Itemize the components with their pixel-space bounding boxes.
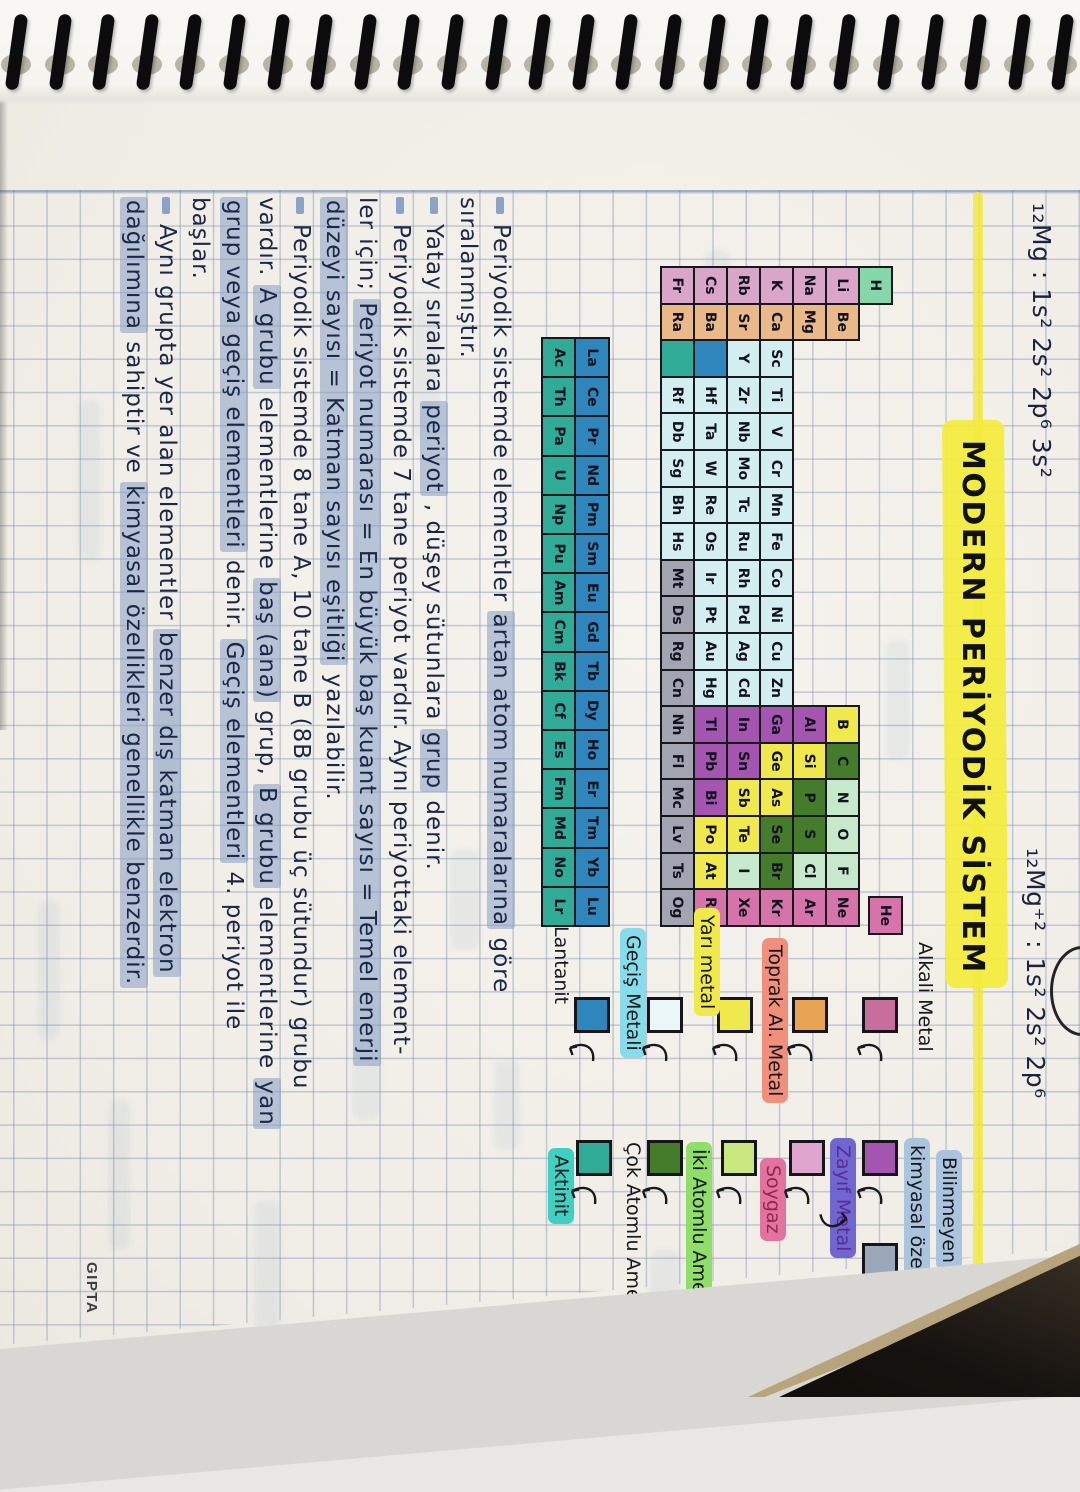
legend-color-box — [576, 1140, 612, 1176]
element-cell-Ru: Ru — [726, 522, 761, 561]
element-cell-Fm: Fm — [541, 768, 577, 809]
spiral-coil — [572, 13, 595, 90]
element-cell-He: He — [868, 896, 903, 935]
note-text: Periyodik sistemde 8 tane A, 10 tane B (… — [288, 224, 314, 1089]
spiral-coil — [5, 13, 28, 90]
note-line: Periyodik sistemde elementler artan atom… — [488, 197, 514, 993]
bullet-dash-icon — [497, 197, 505, 214]
element-cell-placeholder — [693, 339, 728, 378]
element-cell-Cm: Cm — [541, 611, 577, 652]
element-cell-Zn: Zn — [759, 669, 794, 708]
element-cell-Kr: Kr — [759, 888, 794, 927]
element-cell-Hf: Hf — [693, 376, 728, 415]
element-cell-Th: Th — [541, 376, 577, 417]
highlighted-text: periyot — [420, 401, 448, 495]
note-text: elementlerine — [254, 888, 280, 1078]
element-cell-Ba: Ba — [693, 303, 728, 342]
legend-color-box — [862, 997, 898, 1033]
element-cell-Bk: Bk — [541, 651, 577, 692]
element-cell-Be: Be — [825, 303, 860, 342]
note-line: dağılımına sahiptir ve kimyasal özellikl… — [121, 197, 147, 988]
element-cell-N: N — [825, 778, 860, 817]
spiral-coil — [833, 13, 856, 90]
element-cell-At: At — [693, 852, 728, 891]
element-cell-Au: Au — [693, 632, 728, 671]
note-line: sıralanmıştır. — [455, 197, 481, 359]
electron-config-mg-ion: ₁₂Mg⁺² : 1s² 2s² 2p⁶ — [1021, 848, 1050, 1099]
legend-color-box — [792, 997, 828, 1033]
legend-arrow — [777, 1180, 811, 1208]
element-cell-Sb: Sb — [726, 778, 761, 817]
element-cell-Fl: Fl — [660, 742, 695, 781]
element-cell-Pt: Pt — [693, 595, 728, 634]
legend-arrow-icon — [709, 1037, 739, 1065]
element-cell-Er: Er — [575, 768, 611, 809]
element-cell-Ti: Ti — [759, 376, 794, 415]
element-cell-Cf: Cf — [541, 690, 577, 731]
element-cell-Yb: Yb — [575, 847, 611, 888]
element-cell-Zr: Zr — [726, 376, 761, 415]
note-text: grup, — [254, 702, 280, 784]
element-cell-Fe: Fe — [759, 522, 794, 561]
element-cell-Gd: Gd — [575, 611, 611, 652]
note-text: Periyodik sistemde elementler — [488, 224, 514, 611]
legend-arrow — [635, 1180, 669, 1208]
element-cell-U: U — [541, 455, 577, 496]
spiral-coil — [48, 13, 71, 90]
bullet-dash-icon — [396, 197, 404, 214]
spiral-coil — [484, 13, 507, 90]
spiral-coil — [659, 13, 682, 90]
highlighted-text: A grubu — [253, 285, 281, 389]
element-cell-Na: Na — [792, 266, 827, 305]
element-cell-Ni: Ni — [759, 595, 794, 634]
element-cell-Pd: Pd — [726, 595, 761, 634]
legend-color-box — [717, 997, 753, 1033]
highlighted-text: Periyot numarası = En büyük baş kuant sa… — [353, 299, 381, 1065]
legend-arrow — [850, 1180, 884, 1208]
note-line: Yatay sıralara periyot , düşey sütunlara… — [421, 197, 447, 871]
note-text: ler için; — [354, 197, 380, 299]
element-cell-Tl: Tl — [693, 705, 728, 744]
element-cell-Li: Li — [825, 266, 860, 305]
element-cell-Tb: Tb — [575, 651, 611, 692]
element-cell-Fr: Fr — [660, 266, 695, 305]
note-text: denir. — [221, 552, 247, 639]
highlighted-text: yan — [253, 1078, 281, 1129]
element-cell-Lr: Lr — [541, 886, 577, 927]
legend-arrow-icon — [854, 1037, 884, 1065]
element-cell-Pu: Pu — [541, 533, 577, 574]
note-line: Aynı grupta yer alan elementler benzer d… — [154, 197, 180, 977]
highlighted-text: grup — [420, 729, 448, 792]
element-cell-Sg: Sg — [660, 449, 695, 488]
spiral-coil — [310, 13, 333, 90]
element-cell-Cs: Cs — [693, 266, 728, 305]
element-cell-No: No — [541, 847, 577, 888]
spiral-coil — [920, 13, 943, 90]
element-cell-Rg: Rg — [660, 632, 695, 671]
highlighted-text: artan atom numaralarına — [487, 611, 515, 930]
spiral-coil — [1008, 13, 1031, 90]
legend-color-box — [647, 997, 683, 1033]
legend-arrow — [705, 1037, 739, 1065]
note-text: 4. periyot ile — [221, 863, 247, 1030]
element-cell-Ac: Ac — [541, 337, 577, 378]
legend-arrow — [780, 1037, 814, 1065]
note-text: Periyodik sistemde 7 tane periyot vardır… — [388, 224, 414, 1055]
highlighted-text: baş (ana) — [253, 578, 281, 702]
notebook-photo: { "notebook": { "brand": "GIPTA" }, "hea… — [0, 0, 1080, 1397]
element-cell-Ga: Ga — [759, 705, 794, 744]
element-cell-Ag: Ag — [726, 632, 761, 671]
element-cell-Mt: Mt — [660, 559, 695, 598]
legend-color-box — [647, 1140, 683, 1176]
note-text: başlar. — [187, 197, 213, 280]
element-cell-In: In — [726, 705, 761, 744]
element-cell-Sr: Sr — [726, 303, 761, 342]
element-cell-Ca: Ca — [759, 303, 794, 342]
legend-arrow — [635, 1037, 669, 1065]
element-cell-B: B — [825, 705, 860, 744]
highlighted-text: grup veya geçiş elementleri — [220, 197, 248, 552]
spiral-coil — [92, 13, 115, 90]
note-text: yazılabilir. — [321, 665, 347, 800]
element-cell-Nd: Nd — [575, 455, 611, 496]
element-cell-Rb: Rb — [726, 266, 761, 305]
element-cell-Te: Te — [726, 815, 761, 854]
note-text: Aynı grupta yer alan elementler — [154, 224, 180, 629]
bullet-dash-icon — [296, 197, 304, 214]
legend-item-label: Yarı metal — [694, 908, 720, 1016]
element-cell-Mo: Mo — [726, 449, 761, 488]
element-cell-Ce: Ce — [575, 376, 611, 417]
element-cell-Se: Se — [759, 815, 794, 854]
note-text: elementlerine — [254, 389, 280, 579]
label-highlight-band: Bilinmeyen — [936, 1150, 962, 1270]
element-cell-Hs: Hs — [660, 522, 695, 561]
note-line: ler için; Periyot numarası = En büyük ba… — [354, 197, 380, 1066]
element-cell-placeholder — [660, 339, 695, 378]
element-cell-Lu: Lu — [575, 886, 611, 927]
element-cell-S: S — [792, 815, 827, 854]
label-highlight-band: Yarı metal — [694, 908, 720, 1016]
element-cell-Np: Np — [541, 494, 577, 535]
element-cell-Rh: Rh — [726, 559, 761, 598]
element-cell-Y: Y — [726, 339, 761, 378]
legend-color-box — [862, 1140, 898, 1176]
note-text: sahiptir ve — [121, 333, 147, 482]
note-text: göre — [488, 929, 514, 993]
element-cell-Ar: Ar — [792, 888, 827, 927]
element-cell-Al: Al — [792, 705, 827, 744]
legend-arrow — [564, 1180, 598, 1208]
spiral-coil — [223, 13, 246, 90]
element-cell-Ir: Ir — [693, 559, 728, 598]
element-cell-Md: Md — [541, 807, 577, 848]
element-cell-W: W — [693, 449, 728, 488]
element-cell-Sm: Sm — [575, 533, 611, 574]
spiral-coil — [790, 13, 813, 90]
element-cell-H: H — [858, 266, 893, 305]
element-cell-Sc: Sc — [759, 339, 794, 378]
element-cell-Rf: Rf — [660, 376, 695, 415]
element-cell-Cl: Cl — [792, 852, 827, 891]
bullet-dash-icon — [430, 197, 438, 214]
element-cell-Bi: Bi — [693, 778, 728, 817]
element-cell-Og: Og — [660, 888, 695, 927]
highlighted-text: kimyasal özellikleri genellikle benzerdi… — [120, 482, 148, 988]
legend-arrow-icon — [784, 1037, 814, 1065]
element-cell-Ra: Ra — [660, 303, 695, 342]
element-cell-Tc: Tc — [726, 486, 761, 525]
legend-item-label: Alkali Metal — [914, 942, 936, 1052]
element-cell-P: P — [792, 778, 827, 817]
element-cell-Hg: Hg — [693, 669, 728, 708]
element-cell-Db: Db — [660, 412, 695, 451]
element-cell-Ge: Ge — [759, 742, 794, 781]
element-cell-Cr: Cr — [759, 449, 794, 488]
legend-arrow-icon — [854, 1180, 884, 1208]
legend-arrow-icon — [639, 1037, 669, 1065]
element-cell-Cu: Cu — [759, 632, 794, 671]
spiral-coil — [441, 13, 464, 90]
legend-arrow-icon — [781, 1180, 811, 1208]
note-text: vardır. — [254, 197, 280, 285]
note-line: Periyodik sistemde 7 tane periyot vardır… — [388, 197, 414, 1055]
spiral-coil — [615, 13, 638, 90]
element-cell-Nb: Nb — [726, 412, 761, 451]
label-highlight-band: Toprak Al. Metal — [762, 938, 788, 1103]
spiral-coil — [397, 13, 420, 90]
spiral-coil — [702, 13, 725, 90]
highlighted-text: benzer dış katman elektron — [153, 629, 181, 977]
element-cell-Br: Br — [759, 852, 794, 891]
highlighted-text: Geçiş elementleri — [220, 639, 248, 864]
legend-color-box — [789, 1140, 825, 1176]
page-title: MODERN PERİYODİK SİSTEM — [955, 440, 990, 975]
element-cell-Pm: Pm — [575, 494, 611, 535]
legend-arrow-icon — [566, 1037, 596, 1065]
element-cell-Es: Es — [541, 729, 577, 770]
spiral-coil — [528, 13, 551, 90]
element-cell-Sn: Sn — [726, 742, 761, 781]
note-line: Periyodik sistemde 8 tane A, 10 tane B (… — [288, 197, 314, 1089]
element-cell-Ts: Ts — [660, 852, 695, 891]
notebook-page: MODERN PERİYODİK SİSTEM ₁₂Mg : 1s² 2s² 2… — [0, 0, 1080, 1397]
element-cell-Cn: Cn — [660, 669, 695, 708]
element-cell-Ds: Ds — [660, 595, 695, 634]
spiral-coil — [266, 13, 289, 90]
element-cell-Nh: Nh — [660, 705, 695, 744]
element-cell-Re: Re — [693, 486, 728, 525]
legend-arrow-icon — [639, 1180, 669, 1208]
element-cell-V: V — [759, 412, 794, 451]
legend-arrow-icon — [568, 1180, 598, 1208]
page-edge-shadow — [0, 90, 8, 730]
note-text: denir. — [421, 792, 447, 871]
spiral-coil — [746, 13, 769, 90]
bullet-dash-icon — [163, 197, 171, 214]
note-text: , düşey sütunlara — [421, 496, 447, 729]
element-cell-Eu: Eu — [575, 572, 611, 613]
element-cell-I: I — [726, 852, 761, 891]
spiral-coil — [179, 13, 202, 90]
spiral-coil — [136, 13, 159, 90]
element-cell-Tm: Tm — [575, 807, 611, 848]
element-cell-As: As — [759, 778, 794, 817]
element-cell-Cd: Cd — [726, 669, 761, 708]
element-cell-Pa: Pa — [541, 415, 577, 456]
spiral-binding — [0, 0, 1080, 104]
element-cell-Mg: Mg — [792, 303, 827, 342]
element-cell-Mn: Mn — [759, 486, 794, 525]
legend-item-label: Toprak Al. Metal — [762, 938, 788, 1103]
note-line: grup veya geçiş elementleri denir. Geçiş… — [221, 197, 247, 1030]
spiral-coil — [877, 13, 900, 90]
note-text: Yatay sıralara — [421, 224, 447, 401]
element-cell-Pb: Pb — [693, 742, 728, 781]
legend-item-label: Bilinmeyen — [936, 1150, 962, 1270]
element-cell-Bh: Bh — [660, 486, 695, 525]
legend-arrow — [562, 1037, 596, 1065]
legend-color-box — [574, 997, 610, 1033]
element-cell-Ho: Ho — [575, 729, 611, 770]
note-line: başlar. — [187, 197, 213, 280]
legend-arrow — [709, 1180, 743, 1208]
element-cell-Dy: Dy — [575, 690, 611, 731]
element-cell-Ne: Ne — [825, 888, 860, 927]
element-cell-Po: Po — [693, 815, 728, 854]
element-cell-O: O — [825, 815, 860, 854]
element-cell-Pr: Pr — [575, 415, 611, 456]
element-cell-F: F — [825, 852, 860, 891]
element-cell-K: K — [759, 266, 794, 305]
brand-logo: GIPTA — [83, 1262, 100, 1314]
note-text: sıralanmıştır. — [455, 197, 481, 359]
legend-color-box — [721, 1140, 757, 1176]
element-cell-Lv: Lv — [660, 815, 695, 854]
element-cell-La: La — [575, 337, 611, 378]
electron-config-mg: ₁₂Mg : 1s² 2s² 2p⁶ 3s² — [1027, 203, 1056, 478]
legend-item-label: Lantanit — [550, 926, 572, 1004]
highlighted-text: B grubu — [253, 784, 281, 888]
note-line: vardır. A grubu elementlerine baş (ana) … — [254, 197, 280, 1129]
legend-arrow-icon — [713, 1180, 743, 1208]
element-cell-Co: Co — [759, 559, 794, 598]
element-cell-C: C — [825, 742, 860, 781]
spiral-coil — [1051, 13, 1074, 90]
highlighted-text: düzeyi sayısı = Katman sayısı eşitliği — [320, 197, 348, 665]
legend-arrow — [850, 1037, 884, 1065]
element-cell-Am: Am — [541, 572, 577, 613]
element-cell-Ta: Ta — [693, 412, 728, 451]
note-line: düzeyi sayısı = Katman sayısı eşitliği y… — [321, 197, 347, 801]
element-cell-Mc: Mc — [660, 778, 695, 817]
element-cell-Si: Si — [792, 742, 827, 781]
spiral-coil — [964, 13, 987, 90]
element-cell-Os: Os — [693, 522, 728, 561]
element-cell-Xe: Xe — [726, 888, 761, 927]
highlighted-text: dağılımına — [120, 197, 148, 333]
spiral-coil — [354, 13, 377, 90]
